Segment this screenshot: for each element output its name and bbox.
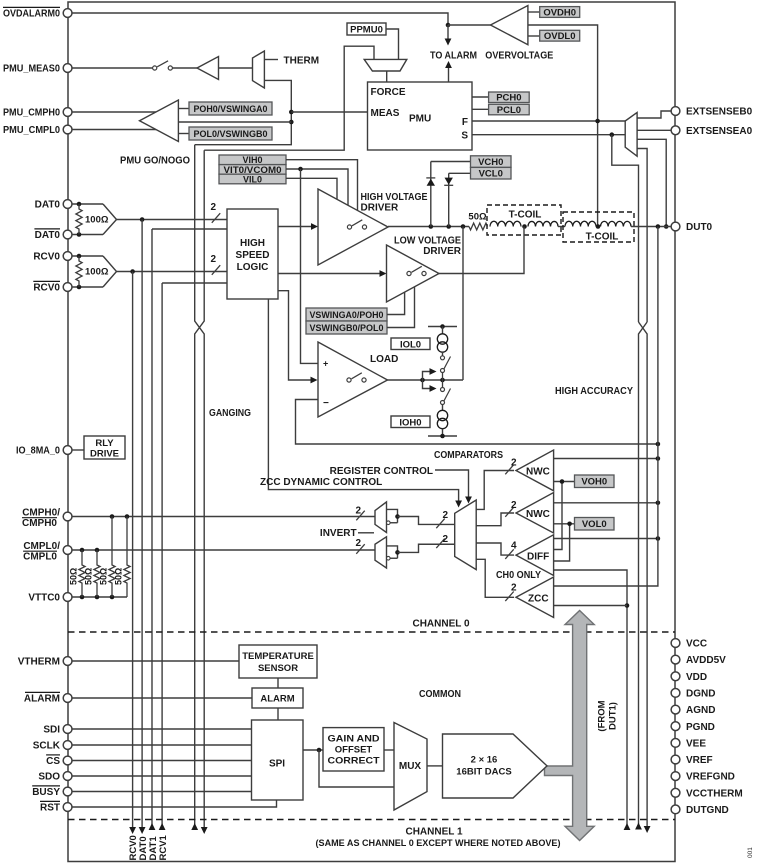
svg-text:2: 2: [211, 254, 217, 265]
svg-text:2: 2: [356, 538, 362, 549]
svg-text:PGND: PGND: [686, 722, 715, 733]
svg-text:50Ω: 50Ω: [468, 212, 487, 223]
svg-text:VEE: VEE: [686, 739, 706, 750]
svg-text:CMPL0/: CMPL0/: [23, 541, 60, 552]
svg-text:THERM: THERM: [284, 56, 320, 67]
svg-text:50Ω: 50Ω: [114, 568, 124, 585]
svg-text:DGND: DGND: [686, 689, 715, 700]
svg-text:NWC: NWC: [526, 509, 550, 520]
svg-text:TEMPERATURE: TEMPERATURE: [242, 651, 314, 662]
svg-text:T-COIL: T-COIL: [586, 232, 619, 243]
svg-text:CHANNEL 0: CHANNEL 0: [412, 619, 469, 630]
svg-text:50Ω: 50Ω: [69, 568, 79, 585]
svg-text:S: S: [461, 131, 468, 142]
svg-text:SPI: SPI: [269, 759, 285, 770]
svg-text:LOGIC: LOGIC: [237, 262, 269, 273]
svg-text:COMPARATORS: COMPARATORS: [434, 450, 503, 461]
svg-text:SCLK: SCLK: [33, 741, 61, 752]
svg-text:PCL0: PCL0: [497, 105, 521, 116]
svg-text:DRIVER: DRIVER: [423, 246, 462, 257]
svg-text:RST: RST: [40, 803, 60, 814]
svg-text:BUSY: BUSY: [32, 787, 60, 798]
svg-text:FORCE: FORCE: [371, 87, 406, 98]
svg-text:CMPH0/: CMPH0/: [22, 507, 60, 518]
svg-text:50Ω: 50Ω: [84, 568, 94, 585]
svg-text:VOL0: VOL0: [582, 519, 607, 530]
svg-text:F: F: [462, 117, 468, 128]
svg-text:DIFF: DIFF: [527, 552, 549, 563]
svg-text:OVDL0: OVDL0: [544, 31, 576, 42]
svg-text:VOH0: VOH0: [581, 477, 607, 488]
svg-text:CORRECT: CORRECT: [328, 756, 380, 767]
svg-text:HIGH: HIGH: [240, 238, 265, 249]
svg-text:GAIN AND: GAIN AND: [328, 734, 380, 745]
svg-text:+: +: [323, 359, 328, 369]
svg-text:MUX: MUX: [399, 761, 422, 772]
svg-text:VTHERM: VTHERM: [18, 657, 60, 668]
svg-text:DUT1): DUT1): [608, 702, 619, 730]
svg-text:ZCC: ZCC: [528, 594, 549, 605]
svg-text:DUTGND: DUTGND: [686, 805, 729, 816]
svg-text:AGND: AGND: [686, 705, 715, 716]
svg-text:100Ω: 100Ω: [85, 267, 109, 278]
svg-text:AVDD5V: AVDD5V: [686, 655, 726, 666]
svg-text:CMPL0: CMPL0: [23, 551, 57, 562]
svg-text:TO ALARM: TO ALARM: [430, 51, 477, 62]
svg-text:GANGING: GANGING: [209, 408, 251, 419]
svg-text:SENSOR: SENSOR: [258, 663, 298, 674]
svg-text:VCC: VCC: [686, 639, 707, 650]
svg-text:DRIVE: DRIVE: [90, 449, 119, 460]
svg-text:DRIVER: DRIVER: [361, 203, 400, 214]
svg-text:RCV0: RCV0: [33, 283, 60, 294]
svg-text:2 × 16: 2 × 16: [471, 755, 498, 766]
svg-text:ALARM: ALARM: [260, 694, 294, 705]
svg-text:VREFGND: VREFGND: [686, 772, 735, 783]
svg-text:100Ω: 100Ω: [85, 215, 109, 226]
svg-text:LOAD: LOAD: [370, 354, 398, 365]
svg-text:VCL0: VCL0: [479, 169, 503, 180]
svg-text:2: 2: [443, 510, 449, 521]
svg-text:POH0/VSWINGA0: POH0/VSWINGA0: [194, 104, 268, 115]
svg-text:DAT0: DAT0: [35, 230, 61, 241]
svg-text:2: 2: [356, 506, 362, 517]
svg-text:2: 2: [211, 202, 217, 213]
svg-text:4: 4: [511, 541, 517, 552]
svg-text:(FROM: (FROM: [597, 700, 608, 731]
svg-text:SPEED: SPEED: [236, 250, 270, 261]
svg-text:IOH0: IOH0: [399, 417, 421, 428]
svg-text:VREF: VREF: [686, 755, 713, 766]
svg-text:CH0 ONLY: CH0 ONLY: [496, 570, 541, 581]
svg-text:SDI: SDI: [43, 725, 60, 736]
svg-text:DAT0: DAT0: [35, 200, 61, 211]
svg-text:VTTC0: VTTC0: [28, 593, 60, 604]
svg-text:IOL0: IOL0: [400, 339, 421, 350]
svg-text:PCH0: PCH0: [496, 93, 521, 104]
svg-text:VSWINGA0/POH0: VSWINGA0/POH0: [310, 310, 384, 321]
svg-text:CMPH0: CMPH0: [22, 518, 57, 529]
svg-text:PMU_CMPL0: PMU_CMPL0: [3, 125, 60, 136]
svg-text:PMU_CMPH0: PMU_CMPH0: [3, 108, 60, 119]
svg-text:RCV1: RCV1: [158, 834, 169, 860]
svg-text:OVERVOLTAGE: OVERVOLTAGE: [485, 51, 553, 62]
svg-text:(SAME AS CHANNEL 0 EXCEPT WHER: (SAME AS CHANNEL 0 EXCEPT WHERE NOTED AB…: [316, 838, 561, 849]
svg-text:PMU_MEAS0: PMU_MEAS0: [3, 64, 60, 75]
svg-text:RLY: RLY: [95, 438, 114, 449]
svg-text:001: 001: [747, 847, 754, 858]
svg-text:DUT0: DUT0: [686, 222, 713, 233]
svg-text:PMU GO/NOGO: PMU GO/NOGO: [120, 156, 190, 167]
svg-text:CHANNEL 1: CHANNEL 1: [405, 827, 462, 838]
svg-text:2: 2: [511, 583, 517, 594]
svg-text:VSWINGB0/POL0: VSWINGB0/POL0: [310, 323, 384, 334]
svg-text:CS: CS: [46, 756, 60, 767]
svg-text:VCH0: VCH0: [478, 157, 503, 168]
svg-text:T-COIL: T-COIL: [509, 210, 542, 221]
svg-text:COMMON: COMMON: [419, 688, 461, 700]
svg-text:MEAS: MEAS: [371, 108, 400, 119]
svg-text:PMU: PMU: [409, 114, 431, 125]
svg-text:NWC: NWC: [526, 467, 550, 478]
svg-text:RCV0: RCV0: [33, 252, 60, 263]
svg-text:ALARM: ALARM: [24, 694, 60, 705]
svg-text:VDD: VDD: [686, 672, 707, 683]
svg-text:HIGH ACCURACY: HIGH ACCURACY: [555, 385, 633, 397]
svg-text:50Ω: 50Ω: [99, 568, 109, 585]
svg-text:POL0/VSWINGB0: POL0/VSWINGB0: [194, 129, 268, 140]
svg-text:16BIT DACS: 16BIT DACS: [456, 767, 511, 778]
svg-text:REGISTER CONTROL: REGISTER CONTROL: [330, 466, 433, 477]
svg-text:2: 2: [511, 458, 517, 469]
svg-text:ZCC DYNAMIC CONTROL: ZCC DYNAMIC CONTROL: [260, 477, 382, 488]
svg-text:EXTSENSEA0: EXTSENSEA0: [686, 126, 753, 137]
svg-text:VCCTHERM: VCCTHERM: [686, 788, 743, 799]
svg-text:PPMU0: PPMU0: [350, 24, 383, 35]
svg-text:VIH0: VIH0: [242, 155, 262, 165]
svg-text:OVDH0: OVDH0: [543, 7, 576, 18]
svg-text:2: 2: [443, 534, 449, 545]
svg-text:OFFSET: OFFSET: [335, 745, 373, 756]
svg-text:OVDALARM0: OVDALARM0: [3, 9, 60, 20]
svg-text:LOW VOLTAGE: LOW VOLTAGE: [394, 236, 461, 247]
svg-text:2: 2: [511, 500, 517, 511]
svg-text:IO_8MA_0: IO_8MA_0: [16, 446, 60, 457]
svg-text:INVERT: INVERT: [320, 528, 357, 539]
svg-text:SDO: SDO: [38, 772, 60, 783]
svg-text:HIGH VOLTAGE: HIGH VOLTAGE: [361, 192, 428, 203]
svg-text:VIT0/VCOM0: VIT0/VCOM0: [224, 165, 282, 175]
svg-text:−: −: [323, 398, 329, 409]
svg-text:EXTSENSEB0: EXTSENSEB0: [686, 107, 753, 118]
svg-text:VIL0: VIL0: [243, 174, 262, 184]
